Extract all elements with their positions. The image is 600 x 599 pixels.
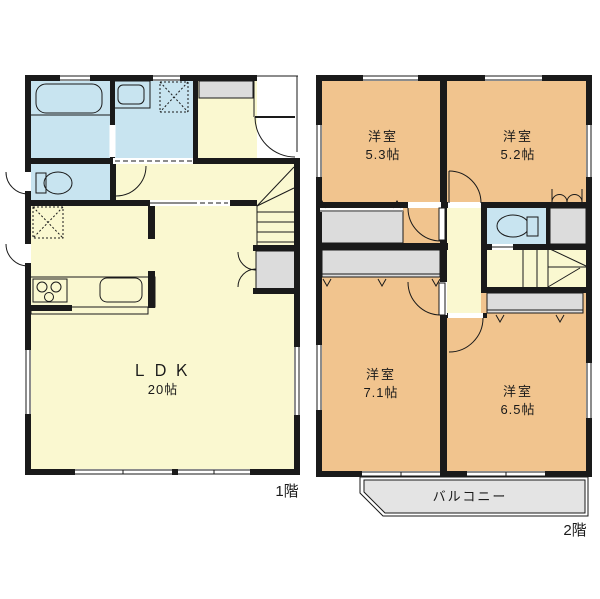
door-opening	[448, 202, 481, 208]
ldk-room-label: ＬＤＫ	[131, 363, 194, 380]
window	[316, 345, 322, 410]
closet-53	[320, 211, 403, 243]
wall	[316, 75, 592, 81]
window	[586, 125, 592, 177]
floor-plan-drawing: ＬＤＫ 20帖 1階 洋室 5.3帖 洋室 5.2帖 洋室 7.1帖 洋室 6.…	[0, 0, 600, 599]
toilet-tank-2f	[527, 217, 538, 236]
hallway-2f	[447, 208, 481, 313]
wall	[25, 75, 31, 475]
wall	[316, 471, 592, 477]
floor1-label: 1階	[275, 483, 298, 500]
room-52-size: 5.2帖	[500, 147, 535, 162]
door-opening	[408, 202, 441, 208]
room-52-label: 洋室	[503, 129, 533, 144]
wall	[546, 202, 550, 244]
ldk-size-label: 20帖	[148, 382, 178, 397]
door-swing-arc	[6, 244, 28, 266]
window	[25, 350, 31, 414]
door-opening	[448, 313, 483, 318]
wall	[481, 202, 487, 293]
floor2-label: 2階	[563, 522, 586, 539]
door-opening	[25, 244, 31, 263]
wall	[294, 158, 300, 475]
room-71-label: 洋室	[366, 367, 396, 382]
wall	[253, 288, 300, 294]
window	[362, 471, 440, 477]
window	[60, 75, 90, 81]
window	[316, 125, 322, 177]
window	[153, 75, 180, 81]
wall	[148, 202, 155, 239]
door-leaf	[439, 283, 445, 315]
understairs-closet	[256, 251, 297, 289]
door-leaf	[439, 208, 445, 240]
wall	[253, 245, 300, 251]
wall	[25, 305, 72, 311]
balcony-label: バルコニー	[433, 489, 508, 504]
floor2-fills	[320, 81, 586, 471]
closet-71	[322, 250, 440, 277]
door-opening	[110, 125, 116, 157]
shoe-cabinet	[199, 81, 253, 98]
bathroom	[31, 81, 110, 158]
room-53-label: 洋室	[368, 129, 398, 144]
room-65-size: 6.5帖	[500, 402, 535, 417]
room-65-label: 洋室	[503, 384, 533, 399]
window	[467, 471, 545, 477]
window	[75, 469, 172, 475]
window	[363, 75, 418, 81]
wall	[25, 75, 257, 81]
room-71-size: 7.1帖	[363, 385, 398, 400]
floor1-fills	[27, 75, 298, 471]
door-swing-arc	[6, 172, 28, 194]
toilet-room-1f	[31, 164, 110, 200]
wall	[193, 81, 198, 160]
wall	[481, 287, 592, 293]
floor-plan: ＬＤＫ 20帖 1階 洋室 5.3帖 洋室 5.2帖 洋室 7.1帖 洋室 6.…	[0, 0, 600, 599]
wall	[110, 158, 116, 206]
wall	[316, 243, 448, 250]
window	[485, 75, 542, 81]
wall	[148, 271, 155, 308]
window	[294, 347, 300, 415]
door-opening	[25, 172, 31, 191]
window	[586, 363, 592, 418]
room-53-size: 5.3帖	[365, 147, 400, 162]
closet-52	[550, 208, 586, 244]
washroom	[115, 81, 193, 158]
window	[178, 469, 250, 475]
wall	[440, 75, 447, 477]
